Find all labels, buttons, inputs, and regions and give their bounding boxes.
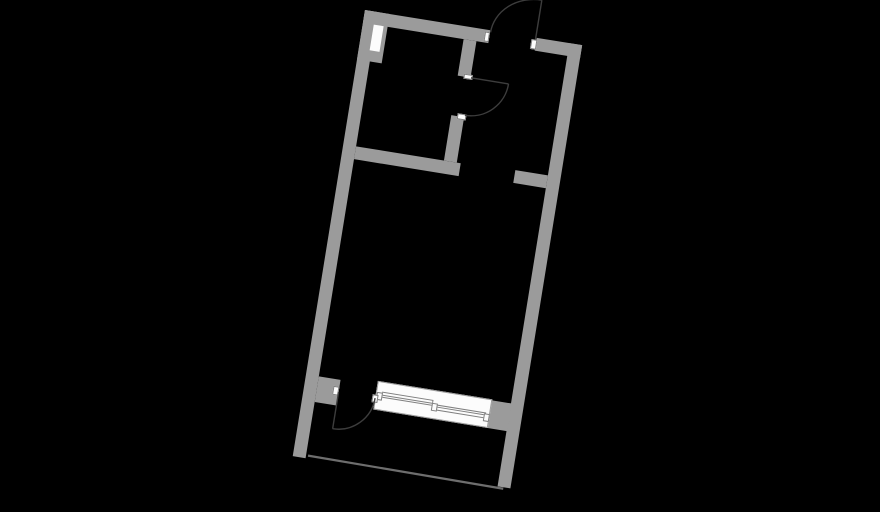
wall-stub-right <box>513 170 548 188</box>
window-end-cap-right <box>483 413 490 422</box>
interior-door-jamb-upper <box>463 73 472 80</box>
entry-door-swing-arc <box>491 0 542 40</box>
interior-door-swing-arc <box>465 78 509 122</box>
balcony-door-jamb-pier <box>332 385 339 395</box>
wall-partition-vertical-lower <box>444 115 464 162</box>
balcony-door-jamb-window <box>371 394 378 402</box>
entry-door-swing-leaf <box>535 0 541 39</box>
wall-right <box>498 43 583 488</box>
screenshot-canvas <box>0 0 880 495</box>
balcony-door-swing-arc <box>333 392 375 434</box>
interior-door-swing-leaf <box>471 78 509 84</box>
entry-door-jamb-left <box>483 31 490 42</box>
wall-partition-vertical-upper <box>458 39 477 78</box>
interior-door-jamb-lower <box>457 113 466 120</box>
floor-plan <box>293 10 582 491</box>
balcony-railing-line <box>308 456 504 489</box>
